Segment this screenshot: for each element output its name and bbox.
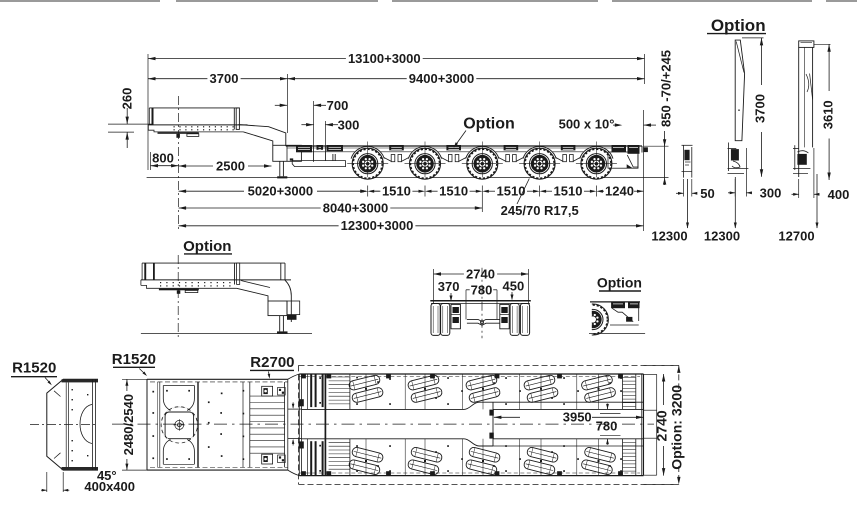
svg-text:700: 700 <box>327 98 349 113</box>
svg-text:2500: 2500 <box>216 159 245 174</box>
svg-text:3610: 3610 <box>821 100 836 129</box>
svg-text:12700: 12700 <box>778 229 814 244</box>
svg-text:Option: Option <box>711 16 766 35</box>
svg-text:260: 260 <box>120 88 135 110</box>
svg-text:R1520: R1520 <box>12 359 56 376</box>
svg-text:13100+3000: 13100+3000 <box>348 51 421 66</box>
svg-text:850 -70/+245: 850 -70/+245 <box>659 50 674 127</box>
svg-text:800: 800 <box>152 150 174 165</box>
svg-text:2740: 2740 <box>466 266 495 281</box>
svg-text:400x400: 400x400 <box>84 479 135 494</box>
svg-text:245/70 R17,5: 245/70 R17,5 <box>501 203 579 218</box>
svg-text:Option: Option <box>463 115 515 132</box>
svg-text:780: 780 <box>471 282 493 297</box>
svg-text:400: 400 <box>828 187 850 202</box>
svg-text:Option: Option <box>597 274 642 290</box>
svg-text:Option: Option <box>183 238 231 255</box>
svg-text:50: 50 <box>700 186 714 201</box>
svg-text:R2700: R2700 <box>250 354 294 371</box>
svg-text:450: 450 <box>503 278 525 293</box>
svg-text:370: 370 <box>438 279 460 294</box>
svg-text:300: 300 <box>338 117 360 132</box>
svg-text:1510: 1510 <box>554 184 583 199</box>
svg-text:1240: 1240 <box>605 184 634 199</box>
svg-text:500 x 10°: 500 x 10° <box>559 116 615 131</box>
svg-text:1510: 1510 <box>439 184 468 199</box>
svg-text:780: 780 <box>596 419 618 434</box>
svg-text:2740: 2740 <box>654 410 670 441</box>
svg-text:Option: 3200: Option: 3200 <box>669 385 685 470</box>
svg-text:2480/2540: 2480/2540 <box>121 394 136 455</box>
svg-text:5020+3000: 5020+3000 <box>248 184 313 199</box>
svg-text:R1520: R1520 <box>112 351 156 368</box>
svg-text:9400+3000: 9400+3000 <box>409 71 474 86</box>
svg-text:8040+3000: 8040+3000 <box>323 200 388 215</box>
svg-text:12300+3000: 12300+3000 <box>341 218 414 233</box>
svg-text:300: 300 <box>760 185 782 200</box>
svg-text:3700: 3700 <box>753 94 768 123</box>
svg-text:3950: 3950 <box>563 410 592 425</box>
svg-text:3700: 3700 <box>210 71 239 86</box>
svg-text:1510: 1510 <box>382 184 411 199</box>
svg-text:12300: 12300 <box>651 229 687 244</box>
svg-text:12300: 12300 <box>704 229 740 244</box>
